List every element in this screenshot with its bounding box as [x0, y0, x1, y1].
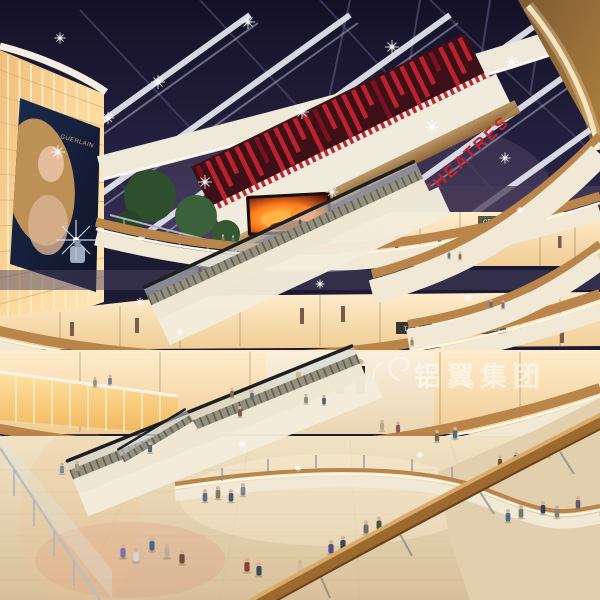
glow-panel-wall: GUERLAIN: [0, 46, 106, 336]
perfume-cap: [75, 240, 81, 247]
model-shoulder: [28, 195, 68, 255]
mall-atrium-rendering: GUERLAIN THEATRES CERRUTI 1881: [0, 0, 600, 600]
scene-canvas: GUERLAIN THEATRES CERRUTI 1881: [0, 0, 600, 600]
perfume-bottle: [70, 246, 85, 263]
watermark-text: 铝翼集团: [414, 361, 546, 392]
